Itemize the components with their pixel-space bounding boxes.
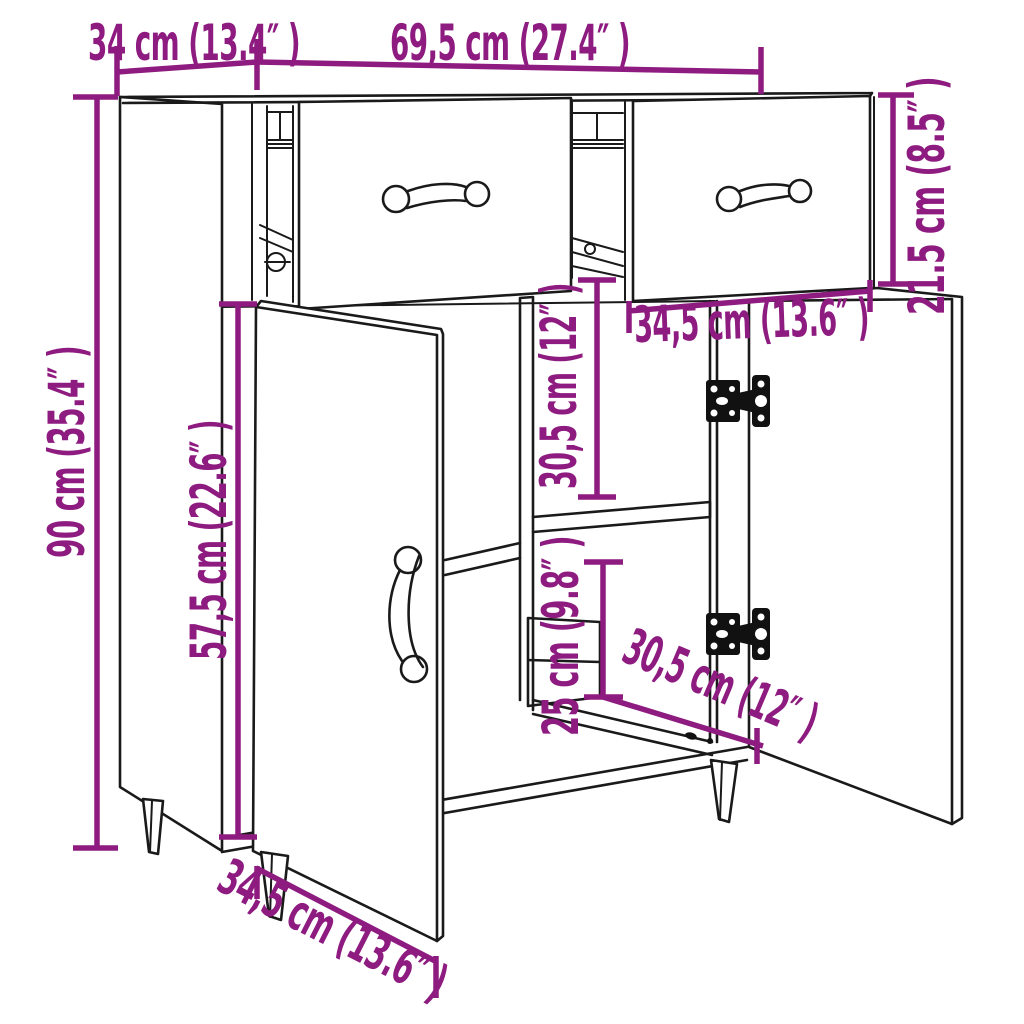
dim-drawer-width-label: 34,5 cm (13.6″ ) <box>633 288 870 354</box>
left-drawer-front <box>299 98 571 309</box>
dimension-drawer-height: 21.5 cm (8.5″ ) <box>878 77 956 315</box>
left-drawer-slide <box>252 104 293 302</box>
dim-height-label: 90 cm (35.4″ ) <box>38 346 96 558</box>
product-dimension-diagram: 34 cm (13.4″ ) 69,5 cm (27.4″ ) 90 cm (3… <box>0 0 1024 1024</box>
leg-back-left <box>143 799 163 854</box>
dimension-height: 90 cm (35.4″ ) <box>38 97 118 848</box>
dimension-upper-compartment: 30,5 cm (12″ ) <box>530 280 616 497</box>
dim-lower-compartment-label: 25 cm (9.8″ ) <box>532 536 590 736</box>
left-door-panel <box>253 301 443 941</box>
leg-front-middle <box>711 760 737 822</box>
right-door-panel <box>749 288 962 824</box>
left-door <box>253 301 443 941</box>
hinge-top <box>706 375 770 427</box>
dim-width-label: 69,5 cm (27.4″ ) <box>390 14 630 72</box>
dim-door-height-label: 57,5 cm (22.6″ ) <box>180 420 238 660</box>
dim-drawer-height-label: 21.5 cm (8.5″ ) <box>898 77 956 315</box>
right-drawer <box>633 96 870 301</box>
floor-hole-small <box>707 738 713 744</box>
right-drawer-front <box>633 96 870 301</box>
dimension-depth: 34 cm (13.4″ ) <box>88 14 300 96</box>
left-drawer <box>299 98 571 309</box>
left-shelf <box>445 543 520 575</box>
dim-upper-compartment-label: 30,5 cm (12″ ) <box>530 283 588 489</box>
sideboard-line-drawing: 34 cm (13.4″ ) 69,5 cm (27.4″ ) 90 cm (3… <box>0 0 1024 1024</box>
dimension-lower-compartment: 25 cm (9.8″ ) <box>532 536 623 736</box>
right-door <box>749 288 962 824</box>
dimension-width: 69,5 cm (27.4″ ) <box>257 14 761 94</box>
middle-drawer-slide <box>572 102 625 300</box>
right-shelf <box>533 502 710 532</box>
